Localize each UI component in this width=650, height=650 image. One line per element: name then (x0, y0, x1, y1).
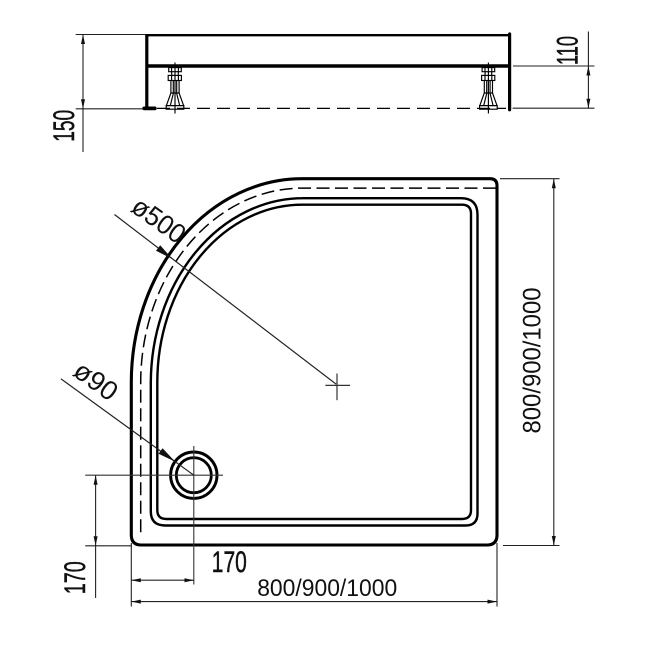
svg-text:800/900/1000: 800/900/1000 (519, 288, 547, 434)
svg-text:110: 110 (552, 36, 585, 65)
svg-text:170: 170 (59, 561, 92, 594)
svg-text:150: 150 (48, 110, 81, 142)
svg-text:800/900/1000: 800/900/1000 (257, 575, 397, 602)
svg-text:170: 170 (212, 546, 247, 579)
